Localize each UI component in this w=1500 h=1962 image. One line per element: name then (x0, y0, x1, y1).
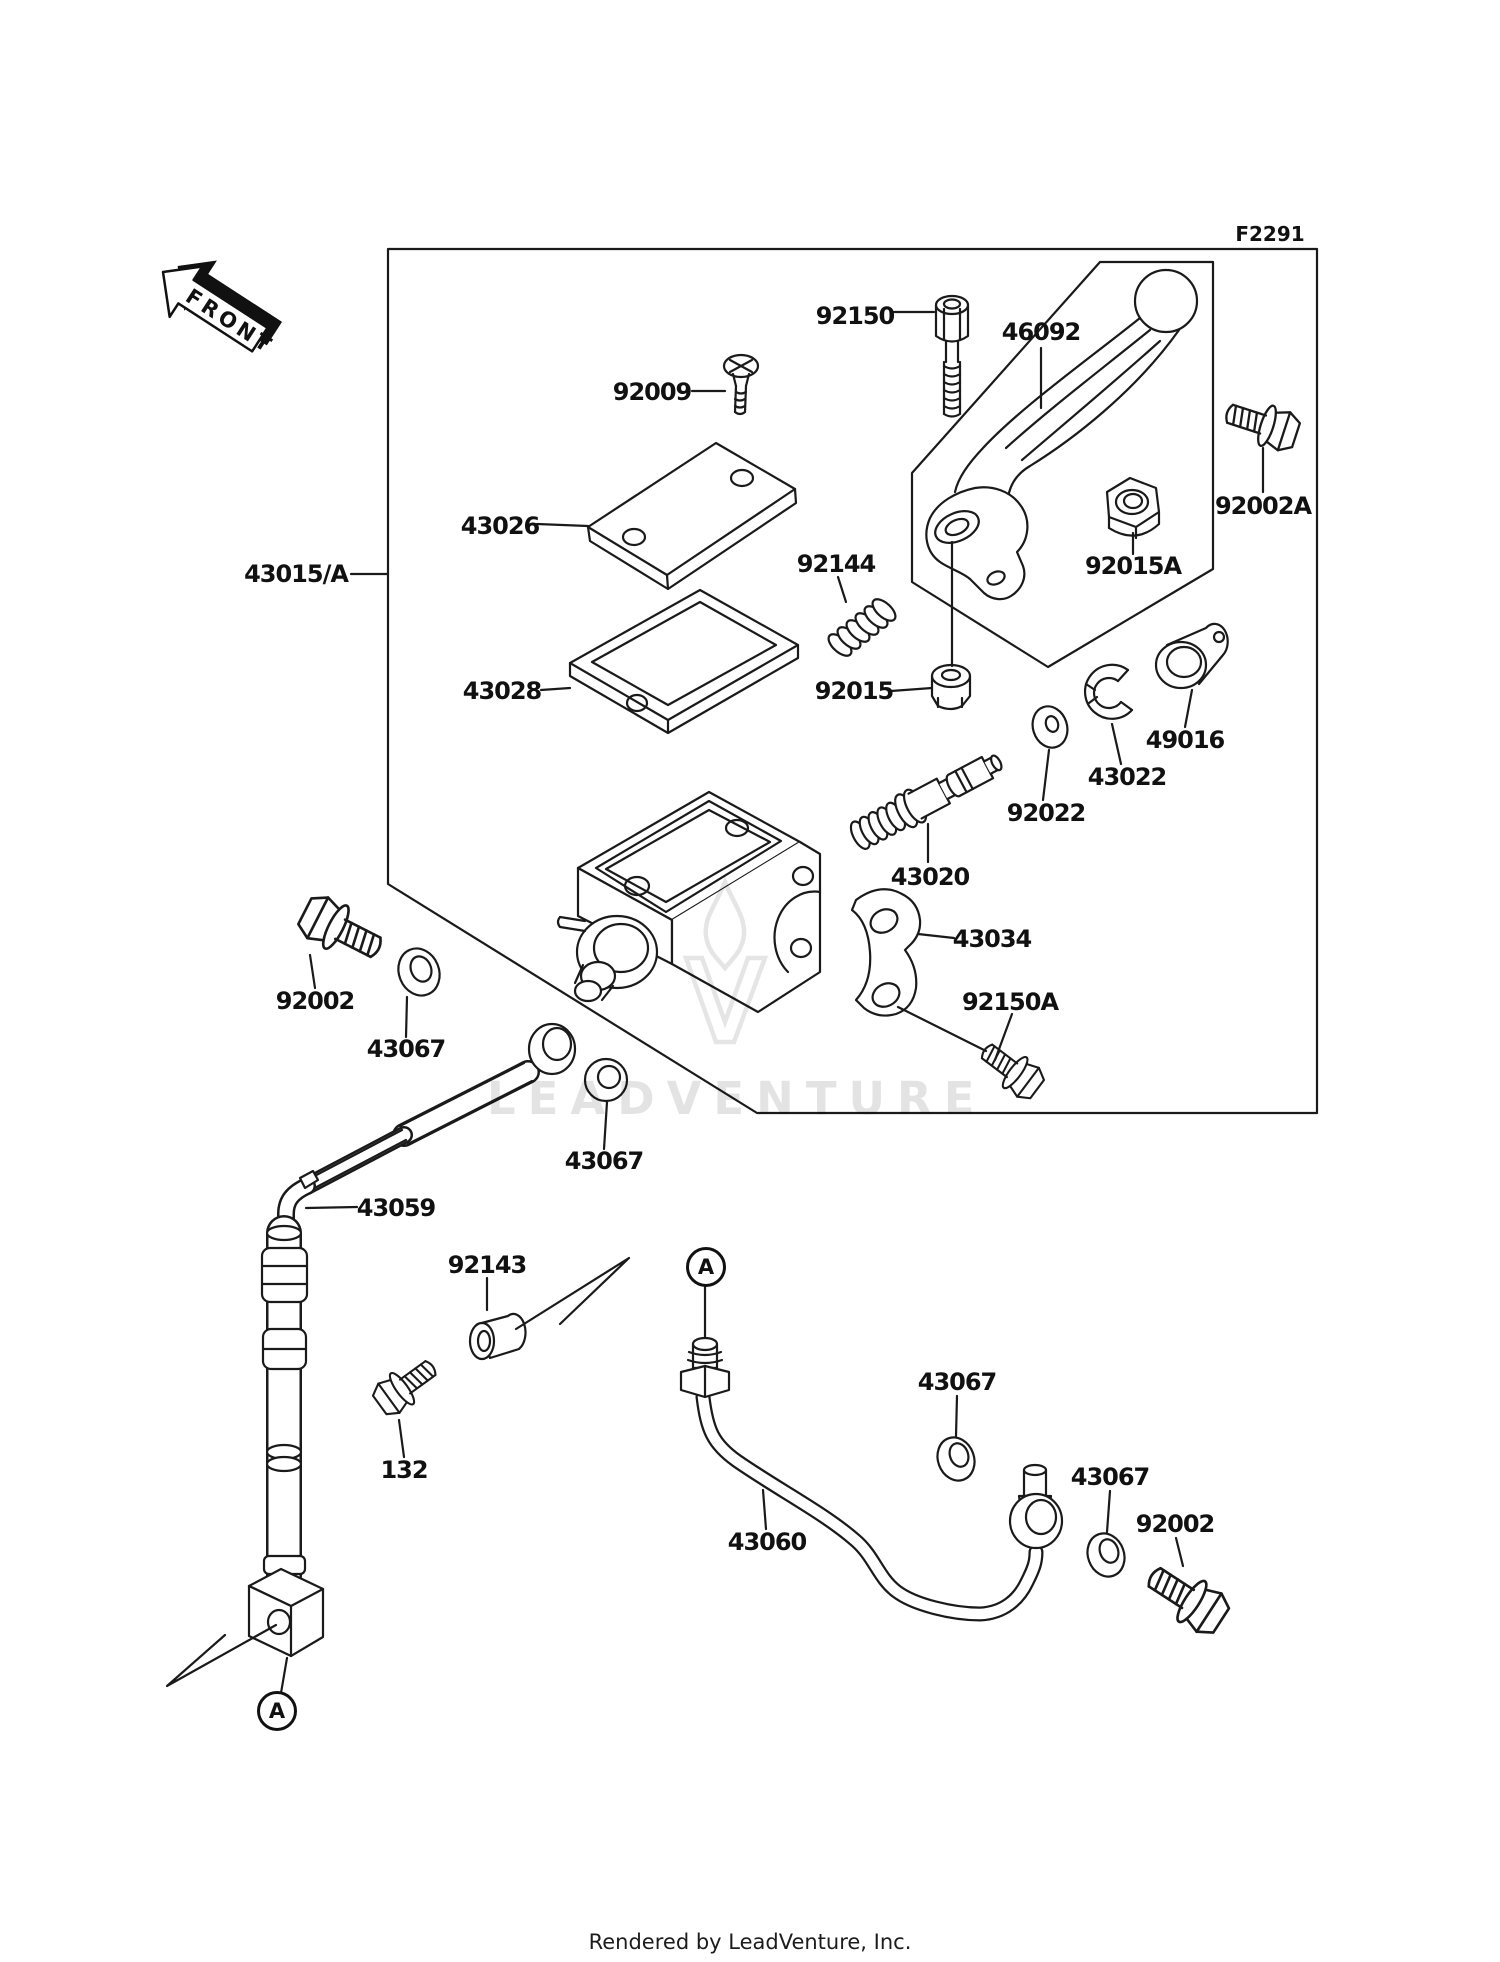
parts-diagram-canvas: FRONT (0, 0, 1500, 1962)
part-label-43015a: 43015/A (244, 560, 348, 588)
footer-credit: Rendered by LeadVenture, Inc. (589, 1930, 912, 1954)
master-cylinder-body-43015 (558, 792, 820, 1012)
handlebar-clamp-43034 (852, 889, 920, 1015)
collar-92143 (470, 1314, 526, 1359)
part-label-49016: 49016 (1146, 726, 1225, 754)
part-label-43020: 43020 (891, 863, 970, 891)
diagram-line-art: FRONT (0, 0, 1500, 1962)
washer-43067-4 (1082, 1528, 1131, 1582)
part-label-92150: 92150 (816, 302, 895, 330)
boot-49016 (1156, 624, 1228, 688)
part-label-46092: 46092 (1002, 318, 1081, 346)
part-label-92002a: 92002A (1215, 492, 1311, 520)
pivot-nut-92015 (932, 665, 970, 709)
bolt-92002a (1221, 393, 1303, 455)
part-label-43034: 43034 (953, 925, 1032, 953)
part-label-43067-4: 43067 (1071, 1463, 1150, 1491)
watermark-text: LEADVENTURE (487, 1072, 986, 1125)
brake-pipe-43060 (681, 1338, 1062, 1614)
figure-code-label: F2291 (1235, 222, 1304, 246)
adjuster-bolt-92150 (936, 296, 968, 417)
washer-43067-1 (391, 942, 446, 1001)
part-label-43028: 43028 (463, 677, 542, 705)
bolt-132 (369, 1351, 444, 1420)
part-label-92015: 92015 (815, 677, 894, 705)
connector-a-top: A (686, 1247, 726, 1287)
part-label-92143: 92143 (448, 1251, 527, 1279)
part-label-92022: 92022 (1007, 799, 1086, 827)
part-label-92002-right: 92002 (1136, 1510, 1215, 1538)
part-label-92150a: 92150A (962, 988, 1058, 1016)
connector-a-top-label: A (698, 1255, 714, 1279)
front-marker: FRONT (144, 239, 296, 373)
part-label-92015a: 92015A (1085, 552, 1181, 580)
part-label-132: 132 (380, 1456, 427, 1484)
part-label-43067-1: 43067 (367, 1035, 446, 1063)
part-label-43059: 43059 (357, 1194, 436, 1222)
part-label-92002-left: 92002 (276, 987, 355, 1015)
part-label-43022: 43022 (1088, 763, 1167, 791)
connector-a-bottom: A (257, 1691, 297, 1731)
screw-92009 (724, 355, 758, 414)
washer-92022 (1027, 702, 1072, 752)
washer-43067-3 (932, 1432, 981, 1486)
spring-92144 (825, 595, 899, 659)
bolt-92002-right (1139, 1555, 1235, 1640)
e-clip-43022 (1085, 665, 1132, 719)
connector-a-bottom-label: A (269, 1699, 285, 1723)
hex-nut-92015a (1107, 478, 1159, 538)
part-label-43067-2: 43067 (565, 1147, 644, 1175)
diaphragm-43028 (570, 590, 798, 733)
part-label-43060: 43060 (728, 1528, 807, 1556)
part-label-92009: 92009 (613, 378, 692, 406)
part-label-43026: 43026 (461, 512, 540, 540)
bolt-92002-left (294, 890, 390, 970)
part-label-92144: 92144 (797, 550, 876, 578)
part-label-43067-3: 43067 (918, 1368, 997, 1396)
reservoir-cap-43026 (588, 443, 796, 589)
